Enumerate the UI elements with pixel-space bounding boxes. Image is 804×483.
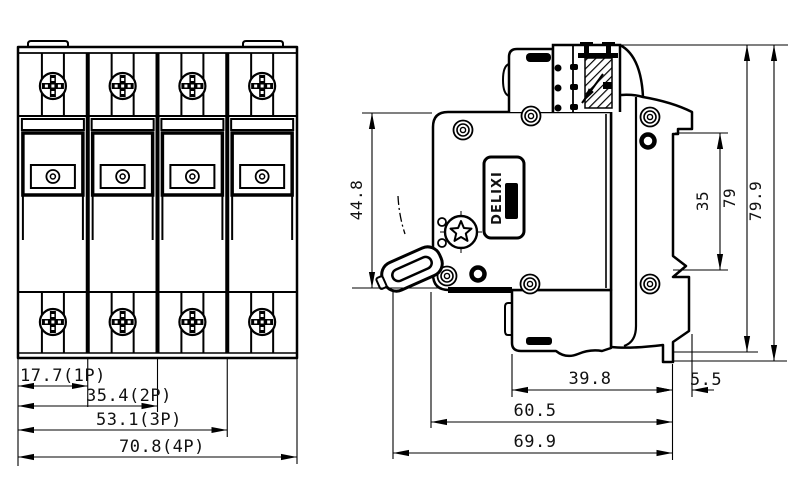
mount-hole: [642, 135, 655, 148]
dim-rail-opening: 35: [693, 191, 712, 211]
lower-body: [512, 290, 611, 356]
mount-hole: [472, 268, 485, 281]
front-view-dimensions: 17.7(1P) 35.4(2P) 53.1(3P) 70.8(4P): [18, 358, 297, 466]
dim-lower-depth: 39.8: [569, 369, 612, 389]
lever-travel-centerline: [398, 196, 405, 234]
side-view: DELIXI: [372, 42, 692, 362]
breaker-dimension-drawing: 17.7(1P) 35.4(2P) 53.1(3P) 70.8(4P): [0, 0, 804, 483]
top-vent-slot: [526, 53, 551, 62]
small-hole: [438, 239, 446, 247]
small-hole: [438, 218, 446, 226]
terminal-clamp-section: [553, 42, 620, 112]
dim-foot-step: 5.5: [690, 370, 722, 390]
dim-total-depth: 69.9: [514, 432, 557, 452]
brand-badge: [505, 183, 518, 219]
dim-width-2p: 35.4(2P): [86, 386, 172, 406]
toggle-lever-icon: [372, 243, 446, 298]
technical-drawing-page: 17.7(1P) 35.4(2P) 53.1(3P) 70.8(4P): [0, 0, 804, 483]
dim-width-3p: 53.1(3P): [96, 410, 182, 430]
dim-total-height: 79.9: [746, 181, 765, 222]
brand-label: DELIXI: [484, 157, 524, 238]
dim-width-1p: 17.7(1P): [20, 366, 106, 386]
dim-width-4p: 70.8(4P): [119, 437, 205, 457]
dim-mount-height: 79: [720, 188, 739, 208]
front-view: [18, 41, 297, 358]
dim-body-height: 44.8: [347, 180, 366, 221]
bottom-vent-slot: [526, 337, 552, 345]
brand-text: DELIXI: [490, 171, 505, 225]
dim-body-depth: 60.5: [514, 401, 557, 421]
